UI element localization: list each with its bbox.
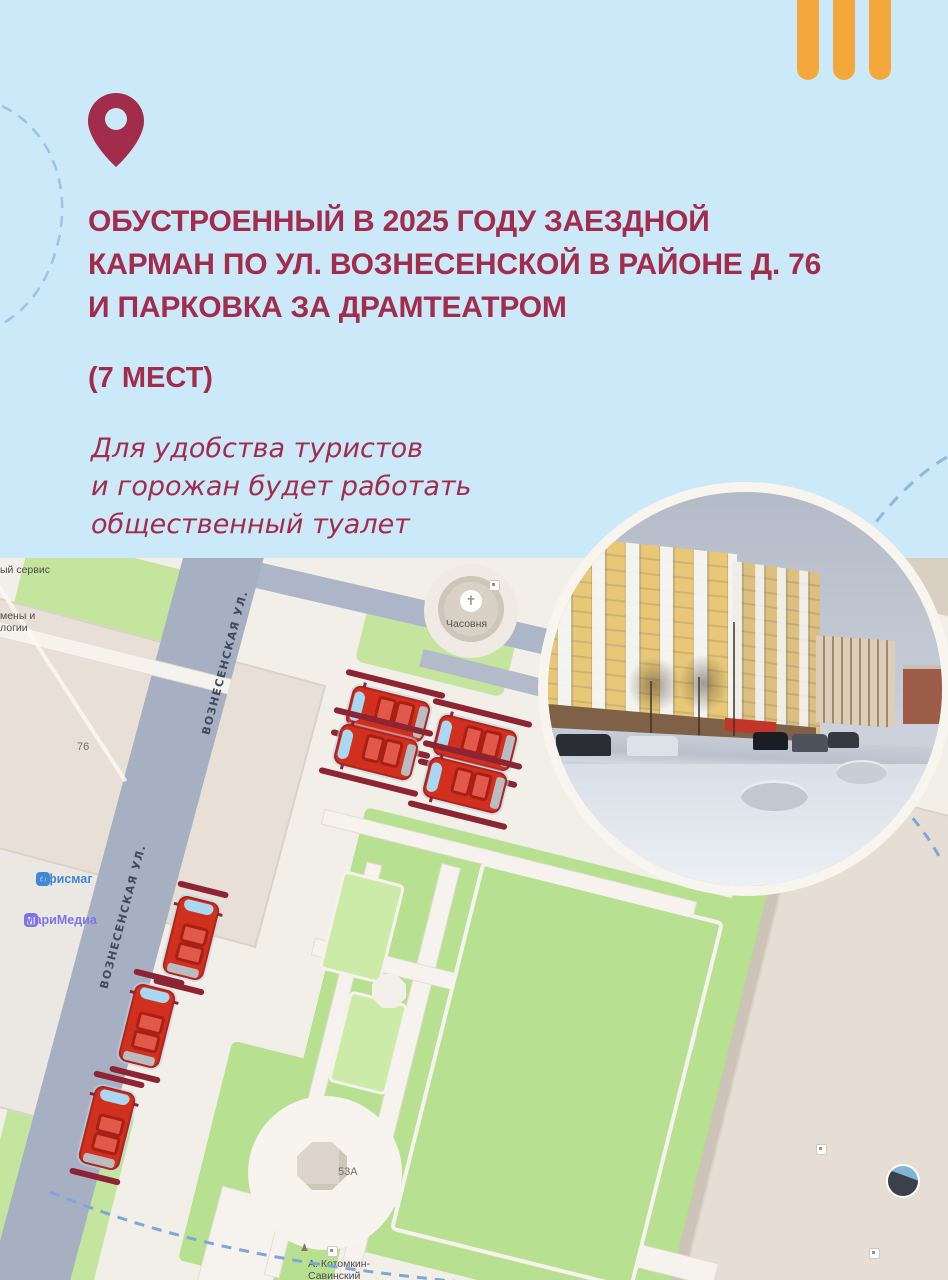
- photo-building: [816, 635, 895, 727]
- capacity-label: (7 МЕСТ): [88, 362, 213, 395]
- decor-orange-bar: [833, 0, 855, 80]
- poi-marimedia: ▤ МариМедиа: [24, 913, 38, 927]
- map-label-partial: ый сервис: [0, 564, 50, 576]
- theater-poi-icon: [886, 1164, 920, 1198]
- photo-car: [792, 734, 827, 752]
- photo-bench: [741, 780, 808, 812]
- photo-tree: [678, 654, 729, 713]
- map-poi-icon: [869, 1248, 880, 1259]
- note-text: Для удобства туристов и горожан будет ра…: [91, 430, 472, 544]
- monument-icon: ♟: [300, 1243, 309, 1254]
- street-photo-circle: [538, 482, 948, 896]
- photo-tree: [627, 657, 682, 712]
- monument-label: А. Котомкин-Савинский: [248, 1258, 368, 1270]
- location-pin-icon: [87, 92, 145, 168]
- house-number-53a: 53А: [338, 1166, 358, 1178]
- chapel-label: Часовня: [446, 618, 487, 630]
- photo-snow-plaza: [540, 764, 948, 894]
- photo-car: [828, 732, 860, 748]
- house-number-76: 76: [77, 741, 89, 753]
- parking-spot-icon: [332, 722, 420, 782]
- map-poi-icon: [816, 1144, 827, 1155]
- poi-ofismag: ☺ Офисмаг: [36, 872, 50, 886]
- infographic-card: 53А ✝ Часовня ВОЗНЕСЕНСКАЯ УЛ. ВОЗНЕСЕНС…: [0, 0, 948, 1280]
- photo-building: [733, 561, 820, 743]
- photo-car: [753, 732, 788, 750]
- photo-car: [627, 736, 678, 756]
- page-title: ОБУСТРОЕННЫЙ В 2025 ГОДУ ЗАЕЗДНОЙ КАРМАН…: [88, 200, 878, 329]
- map-poi-icon: [327, 1246, 338, 1257]
- photo-light-pole: [733, 622, 735, 736]
- map-poi-icon: [489, 580, 500, 591]
- parking-spot-icon: [421, 755, 509, 815]
- photo-building: [903, 665, 942, 724]
- photo-car: [556, 734, 611, 756]
- decor-orange-bar: [797, 0, 819, 80]
- decor-orange-bar: [869, 0, 891, 80]
- chapel-cross-icon: ✝: [460, 590, 482, 612]
- photo-bench: [836, 760, 887, 784]
